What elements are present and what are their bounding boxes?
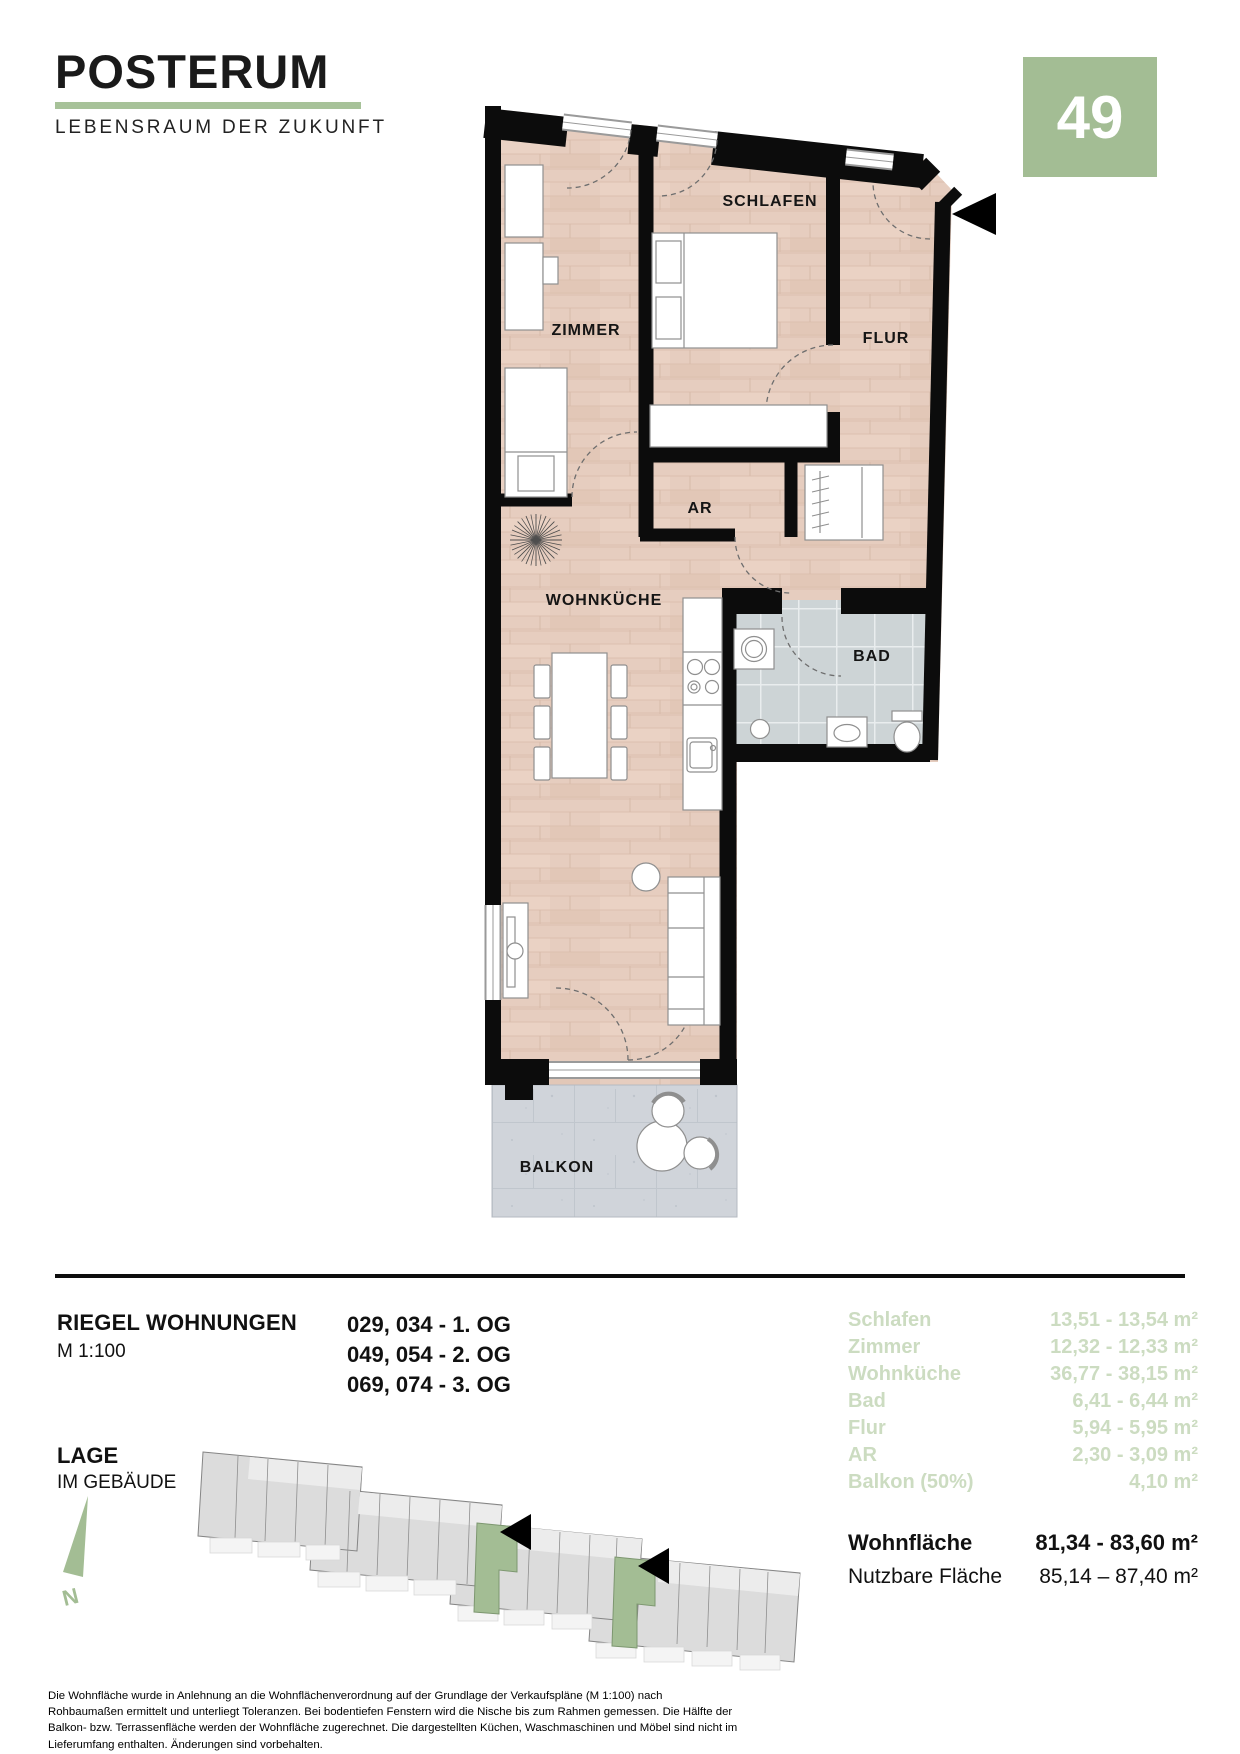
- area-label: AR: [848, 1442, 877, 1469]
- entry-arrow-icon: [952, 193, 996, 235]
- unit-floor-line: 069, 074 - 3. OG: [347, 1370, 511, 1400]
- floorplan-sheet: POSTERUM LEBENSRAUM DER ZUKUNFT 49: [0, 0, 1240, 1754]
- area-row: Zimmer12,32 - 12,33 m²: [848, 1334, 1198, 1361]
- area-label: Balkon (50%): [848, 1469, 974, 1496]
- area-label: Schlafen: [848, 1307, 931, 1334]
- brand-accent-bar: [55, 102, 361, 109]
- north-label: N: [60, 1583, 81, 1611]
- brand-logo: POSTERUM LEBENSRAUM DER ZUKUNFT: [55, 48, 375, 139]
- unit-floor-line: 029, 034 - 1. OG: [347, 1310, 511, 1340]
- room-label-bad: BAD: [853, 648, 891, 665]
- total-label: Wohnfläche: [848, 1526, 972, 1560]
- floorplan-drawing: SCHLAFEN ZIMMER FLUR AR WOHNKÜCHE BAD BA…: [430, 85, 1010, 1235]
- area-value: 12,32 - 12,33 m²: [1050, 1334, 1198, 1361]
- room-label-schlafen: SCHLAFEN: [722, 193, 817, 210]
- unit-floor-line: 049, 054 - 2. OG: [347, 1340, 511, 1370]
- room-label-balkon: BALKON: [520, 1159, 594, 1176]
- section-divider: [55, 1274, 1185, 1278]
- brand-name: POSTERUM: [55, 48, 375, 95]
- area-row: Flur5,94 - 5,95 m²: [848, 1415, 1198, 1442]
- brand-tagline: LEBENSRAUM DER ZUKUNFT: [55, 117, 375, 139]
- north-arrow-icon: [63, 1496, 88, 1577]
- area-row: Bad6,41 - 6,44 m²: [848, 1388, 1198, 1415]
- room-label-zimmer: ZIMMER: [551, 322, 620, 339]
- area-value: 5,94 - 5,95 m²: [1072, 1415, 1198, 1442]
- balcony-wall-pier: [505, 1085, 533, 1100]
- area-row: Wohnküche36,77 - 38,15 m²: [848, 1361, 1198, 1388]
- building-type-title: RIEGEL WOHNUNGEN: [57, 1310, 297, 1336]
- total-value: 85,14 – 87,40 m²: [1039, 1560, 1198, 1594]
- unit-floor-list: 029, 034 - 1. OG 049, 054 - 2. OG 069, 0…: [347, 1310, 511, 1400]
- drawing-scale: M 1:100: [57, 1341, 297, 1363]
- room-label-ar: AR: [687, 500, 712, 517]
- area-value: 36,77 - 38,15 m²: [1050, 1361, 1198, 1388]
- area-value: 4,10 m²: [1129, 1469, 1198, 1496]
- area-row: Balkon (50%)4,10 m²: [848, 1469, 1198, 1496]
- room-label-wohnkueche: WOHNKÜCHE: [546, 590, 663, 609]
- area-row: Schlafen13,51 - 13,54 m²: [848, 1307, 1198, 1334]
- area-label: Wohnküche: [848, 1361, 961, 1388]
- area-value: 13,51 - 13,54 m²: [1050, 1307, 1198, 1334]
- area-value: 6,41 - 6,44 m²: [1072, 1388, 1198, 1415]
- site-plan: N: [55, 1440, 815, 1685]
- area-table: Schlafen13,51 - 13,54 m² Zimmer12,32 - 1…: [848, 1307, 1198, 1594]
- area-label: Bad: [848, 1388, 886, 1415]
- total-row-wohnflaeche: Wohnfläche81,34 - 83,60 m²: [848, 1526, 1198, 1560]
- total-label: Nutzbare Fläche: [848, 1560, 1002, 1594]
- total-value: 81,34 - 83,60 m²: [1035, 1526, 1198, 1560]
- building-type-block: RIEGEL WOHNUNGEN M 1:100: [57, 1310, 297, 1363]
- unit-number-badge: 49: [1023, 57, 1157, 177]
- area-value: 2,30 - 3,09 m²: [1072, 1442, 1198, 1469]
- room-label-flur: FLUR: [863, 330, 910, 347]
- area-label: Zimmer: [848, 1334, 920, 1361]
- area-row: AR2,30 - 3,09 m²: [848, 1442, 1198, 1469]
- area-label: Flur: [848, 1415, 886, 1442]
- total-row-nutzflaeche: Nutzbare Fläche85,14 – 87,40 m²: [848, 1560, 1198, 1594]
- disclaimer-text: Die Wohnfläche wurde in Anlehnung an die…: [48, 1688, 740, 1753]
- plant-icon: [510, 514, 562, 566]
- area-totals: Wohnfläche81,34 - 83,60 m² Nutzbare Fläc…: [848, 1526, 1198, 1594]
- unit-number: 49: [1057, 83, 1124, 152]
